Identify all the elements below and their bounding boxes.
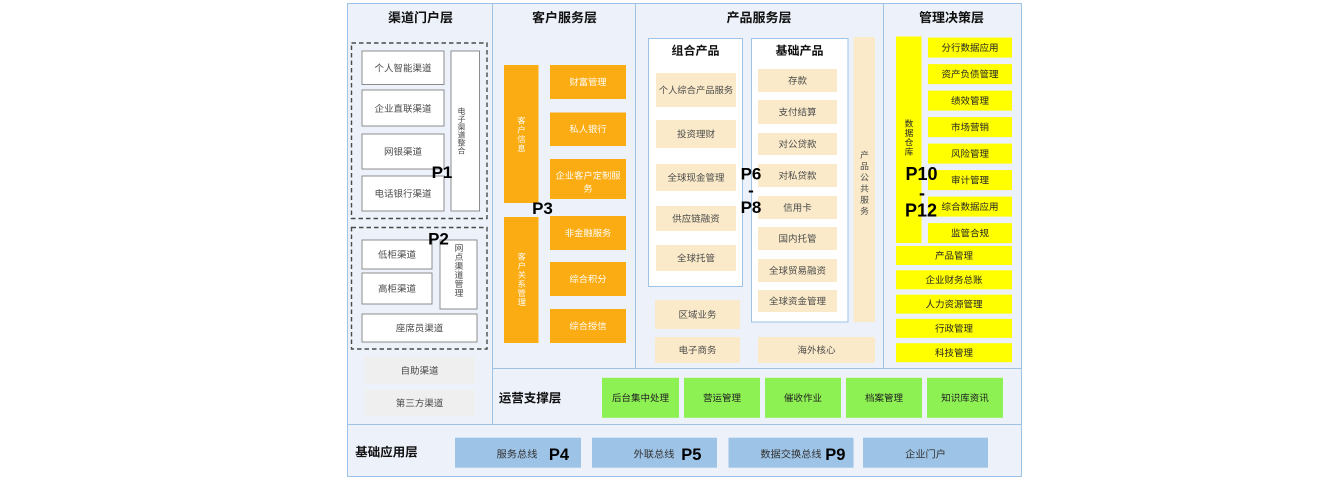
svg-text:P4: P4: [549, 446, 570, 464]
svg-text:P12: P12: [905, 201, 937, 221]
svg-text:P2: P2: [428, 230, 449, 249]
svg-text:P9: P9: [825, 446, 845, 464]
svg-text:P10: P10: [905, 164, 937, 184]
svg-text:P3: P3: [532, 199, 553, 218]
svg-text:P8: P8: [741, 198, 762, 217]
svg-text:P1: P1: [432, 163, 453, 182]
svg-text:P5: P5: [681, 446, 701, 464]
